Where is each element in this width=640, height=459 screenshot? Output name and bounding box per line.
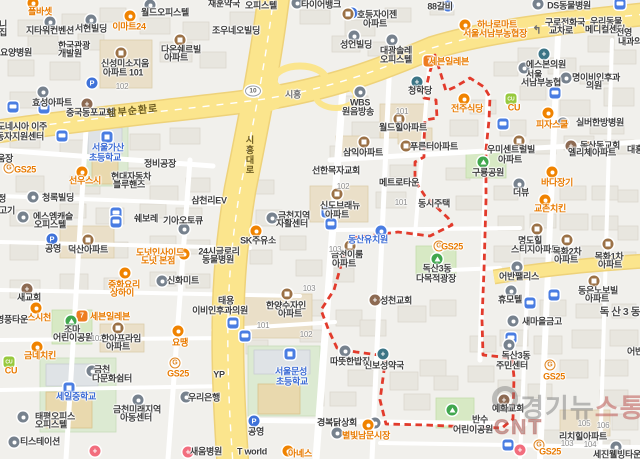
map-base-layer: [0, 0, 640, 459]
map-canvas[interactable]: PPPPP+++++++++++GGGGGCUCU7710↰ 폴바셋월드오피스텔…: [0, 0, 640, 459]
